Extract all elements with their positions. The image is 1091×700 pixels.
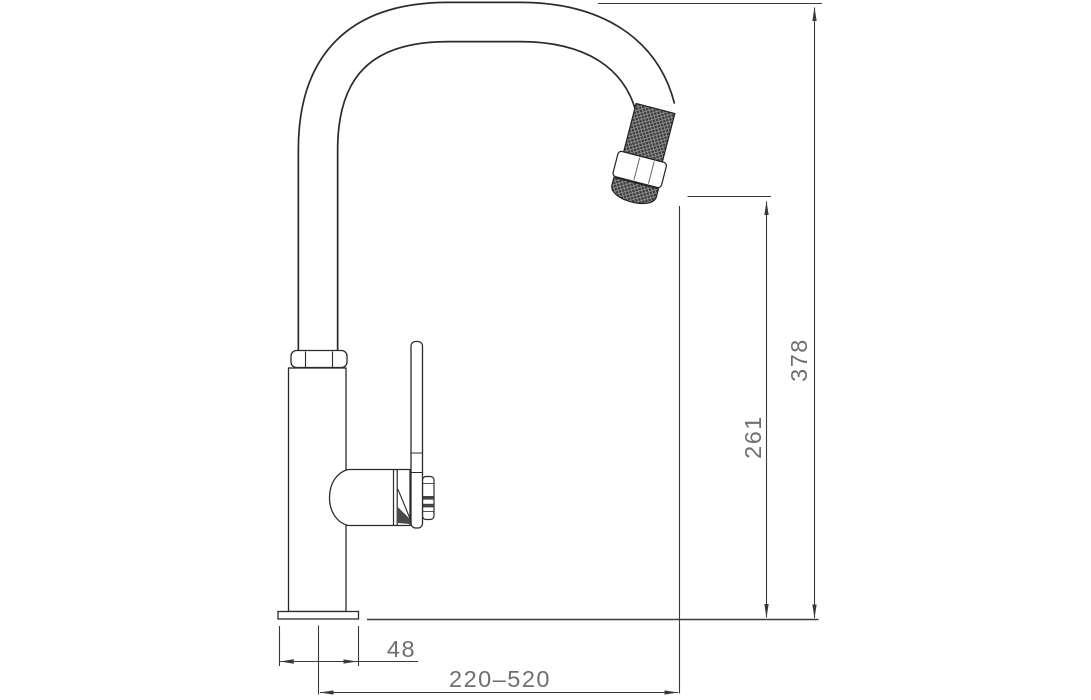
label-base-width: 48	[387, 636, 416, 662]
spout-tube-outline	[318, 22, 656, 354]
spray-knurled-grip	[624, 103, 675, 161]
label-reach-range: 220–520	[449, 666, 551, 692]
tap-object	[278, 22, 680, 619]
lever-cap	[423, 477, 435, 520]
spray-head	[607, 102, 680, 208]
spout-hex-nut	[291, 351, 347, 368]
base-flange	[278, 612, 359, 620]
tap-dimension-drawing: 48 220–520 261 378	[0, 0, 1091, 700]
dimension-labels: 48 220–520 261 378	[387, 338, 812, 692]
label-outlet-height: 261	[740, 415, 766, 459]
drawing-canvas: 48 220–520 261 378	[0, 0, 1091, 700]
handle-lever	[411, 342, 423, 529]
dimension-lines	[280, 4, 823, 695]
spout-tube-body	[318, 22, 656, 354]
label-overall-height: 378	[786, 338, 812, 382]
